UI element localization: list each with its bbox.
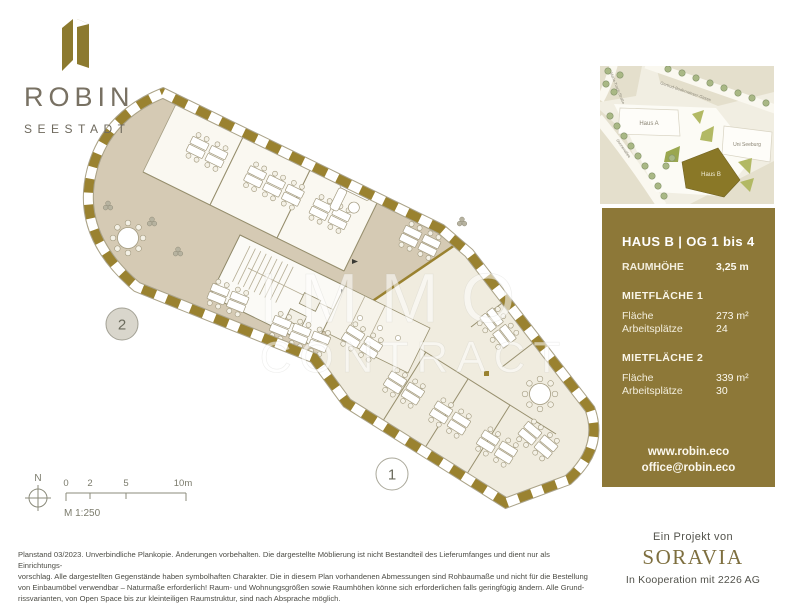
room-height-row: RAUMHÖHE 3,25 m (622, 261, 761, 274)
disclaimer-line: rissvarianten, von Open Space bis zur kl… (18, 593, 593, 604)
flaeche-value: 339 m² (716, 372, 749, 385)
unit-2-label: 2 (118, 317, 126, 334)
disclaimer-line: vorschlag. Alle dargestellten Gegenständ… (18, 571, 593, 582)
disclaimer: Planstand 03/2023. Unverbindliche Planko… (18, 549, 593, 604)
website-text: www.robin.eco (602, 444, 775, 460)
panel-title: HAUS B | OG 1 bis 4 (622, 234, 761, 249)
scale-bar: 0 2 5 10m M 1:250 (63, 478, 192, 519)
arbeitsplaetze-label: Arbeitsplätze (622, 323, 716, 336)
brand-location: SEESTADT (24, 122, 128, 136)
watermark-line2: CONTRACT (260, 333, 568, 382)
project-block: Ein Projekt von SORAVIA In Kooperation m… (600, 531, 786, 586)
map-label-haus-a: Haus A (639, 121, 658, 127)
north-compass: N (25, 473, 51, 511)
flaeche-value: 273 m² (716, 310, 749, 323)
project-name: SORAVIA (600, 545, 786, 570)
scale-tick-0: 0 (63, 478, 68, 489)
map-label-haus-b: Haus B (701, 172, 721, 178)
unit-1-badge: 1 (376, 458, 408, 490)
room-height-value: 3,25 m (716, 261, 749, 274)
arbeitsplaetze-value: 24 (716, 323, 728, 336)
email-text: office@robin.eco (602, 460, 775, 476)
compass-north-label: N (34, 473, 41, 484)
flyer-page: 2 1 IMMO CONTRACT N (0, 0, 800, 600)
unit-1-label: 1 (388, 467, 396, 484)
mietflaeche-2-arbeitsplaetze-row: Arbeitsplätze 30 (622, 385, 761, 398)
info-panel: HAUS B | OG 1 bis 4 RAUMHÖHE 3,25 m MIET… (602, 208, 775, 487)
map-label-uni: Uni Seeburg (733, 142, 761, 148)
disclaimer-line: Planstand 03/2023. Unverbindliche Planko… (18, 549, 593, 571)
flaeche-label: Fläche (622, 310, 716, 323)
site-map: Haus A Uni Seeburg Haus B Maria-Tusch-St… (600, 66, 774, 204)
project-cooperation: In Kooperation mit 2226 AG (600, 574, 786, 586)
mietflaeche-2-flaeche-row: Fläche 339 m² (622, 372, 761, 385)
mietflaeche-1-arbeitsplaetze-row: Arbeitsplätze 24 (622, 323, 761, 336)
brand-name: ROBIN (24, 82, 128, 113)
scale-ratio: M 1:250 (64, 508, 101, 519)
scale-tick-5: 5 (123, 478, 128, 489)
scale-tick-2: 2 (87, 478, 92, 489)
logo-block: ROBIN SEESTADT (24, 16, 128, 136)
panel-contact: www.robin.eco office@robin.eco (602, 444, 775, 476)
arbeitsplaetze-value: 30 (716, 385, 728, 398)
flaeche-label: Fläche (622, 372, 716, 385)
watermark-line1: IMMO (259, 259, 538, 337)
robin-door-icon (61, 16, 91, 72)
arbeitsplaetze-label: Arbeitsplätze (622, 385, 716, 398)
mietflaeche-2-heading: MIETFLÄCHE 2 (622, 352, 761, 364)
room-height-label: RAUMHÖHE (622, 261, 716, 274)
scale-tick-10: 10m (174, 478, 193, 489)
watermark: IMMO CONTRACT (259, 259, 568, 382)
mietflaeche-1-heading: MIETFLÄCHE 1 (622, 290, 761, 302)
project-prefix: Ein Projekt von (600, 531, 786, 543)
mietflaeche-1-flaeche-row: Fläche 273 m² (622, 310, 761, 323)
disclaimer-line: von Einbaumöbel verwendbar – Naturmaße e… (18, 582, 593, 593)
unit-2-badge: 2 (106, 308, 138, 340)
